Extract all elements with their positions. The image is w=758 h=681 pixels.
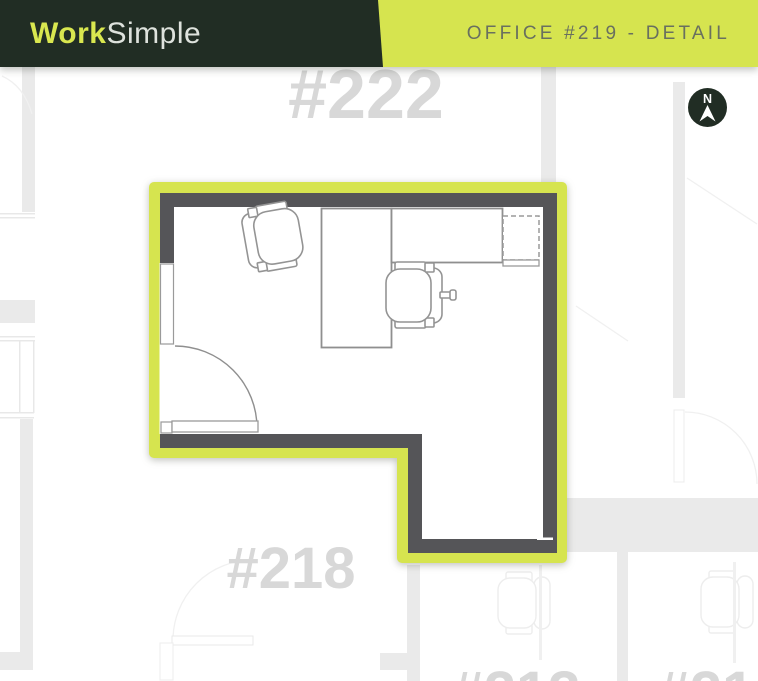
bg-wall-below-office xyxy=(407,565,420,681)
bg-cabinet-218 xyxy=(160,643,173,680)
bg-wall-left-lower xyxy=(20,419,33,653)
bg-door-panel-218 xyxy=(172,636,253,645)
bg-wall-top-right xyxy=(541,60,556,183)
bg-wall-left-bottom xyxy=(0,652,33,670)
bg-door-line-mid xyxy=(576,306,628,341)
bg-door-arc-right xyxy=(685,412,757,484)
chair2-seat xyxy=(386,269,431,322)
floorplan-canvas: #222 #218 #213 #214 xyxy=(0,0,758,681)
chair2-armrest-top-nub xyxy=(425,263,434,272)
bg-wall-left-band xyxy=(0,300,35,323)
desk-main xyxy=(322,209,392,348)
page-title: OFFICE #219 - DETAIL xyxy=(467,0,730,67)
bg-wall-bottom-stub xyxy=(380,653,408,670)
bg-wall-left-top xyxy=(22,60,35,212)
storage-cabinet-front xyxy=(503,260,539,266)
room-label-218[interactable]: #218 xyxy=(226,536,355,601)
bg-door-panel-right xyxy=(674,410,684,482)
desk-return xyxy=(392,209,503,263)
neighbor-desk-line-left xyxy=(539,565,542,660)
bg-wall-corridor xyxy=(555,498,758,552)
chair2-lever-nub xyxy=(450,290,456,300)
neighbor-chair-left xyxy=(498,572,550,634)
storage-cabinet-dashed xyxy=(503,216,539,260)
compass-north-label: N xyxy=(703,92,712,106)
office-door-hinge xyxy=(161,422,172,433)
logo-simple: Simple xyxy=(106,17,201,51)
office-219[interactable] xyxy=(154,187,562,558)
compass: N xyxy=(688,88,727,127)
bg-wall-bottom-divider xyxy=(617,552,628,681)
bg-door-line-right xyxy=(687,178,757,224)
neighbor-desk-line-right xyxy=(733,562,736,663)
office-door-panel xyxy=(172,421,258,432)
brand-logo[interactable]: WorkSimple xyxy=(30,0,201,67)
logo-work: Work xyxy=(30,17,106,51)
room-label-213: #213 xyxy=(451,660,580,681)
chair1-seat xyxy=(252,206,306,266)
wall-gap-line xyxy=(537,538,553,541)
office-window xyxy=(161,264,174,344)
neighbor-chair-right xyxy=(701,571,753,633)
bg-wall-right xyxy=(673,82,685,398)
room-label-214: #214 xyxy=(657,660,758,681)
